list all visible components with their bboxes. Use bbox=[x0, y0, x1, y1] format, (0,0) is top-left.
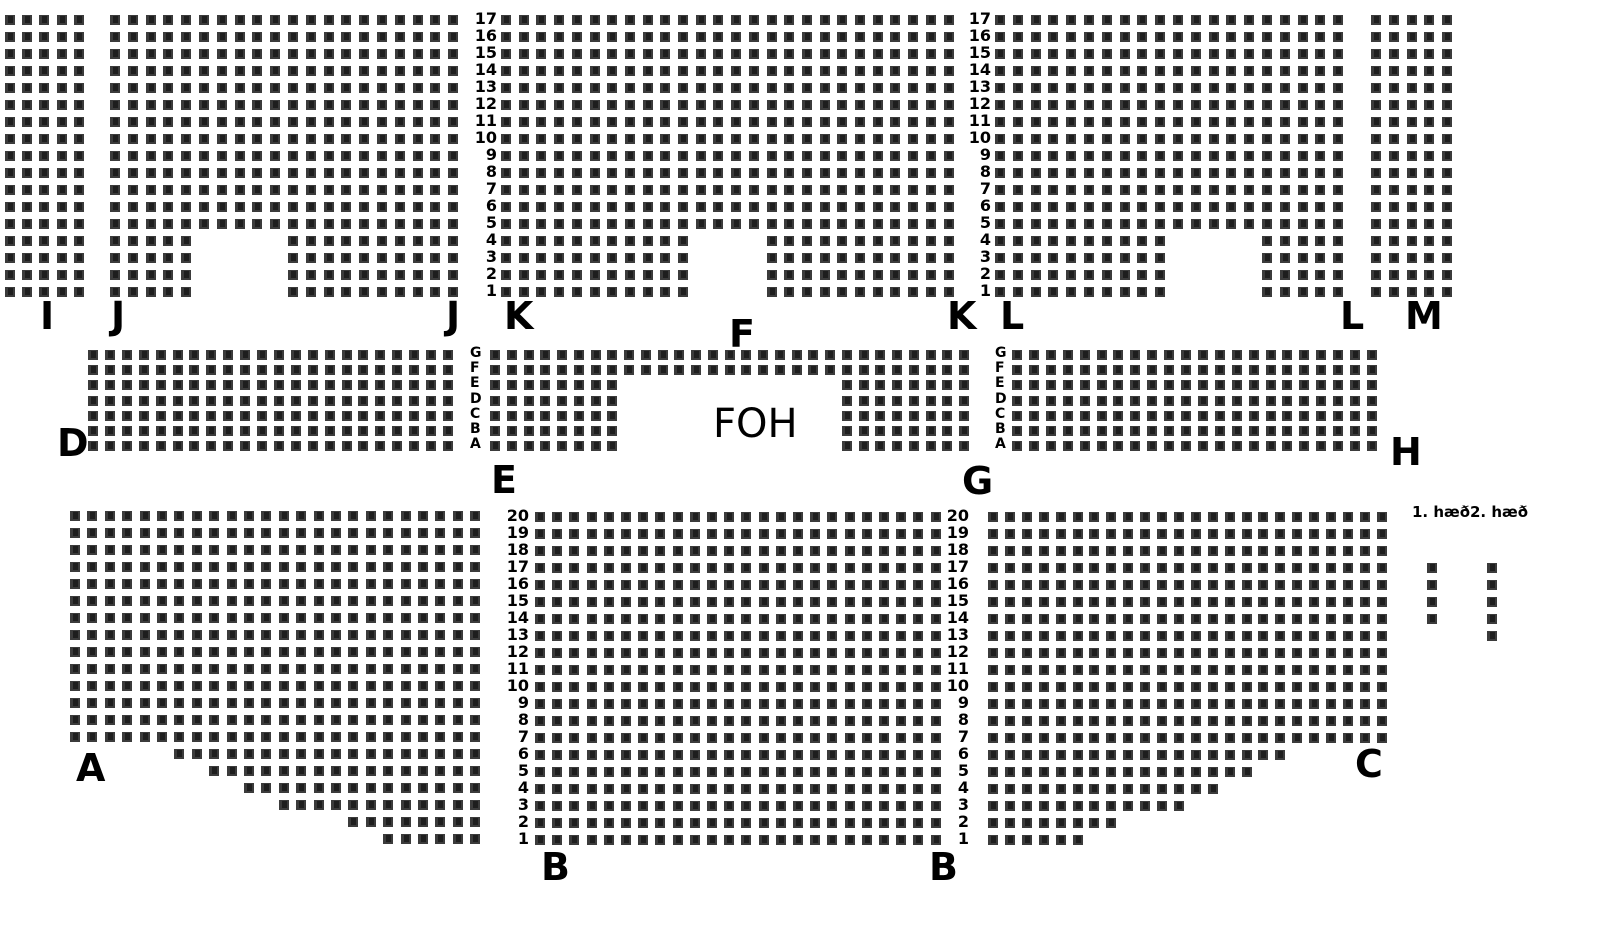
seat[interactable] bbox=[401, 732, 411, 742]
seat[interactable] bbox=[1173, 83, 1183, 93]
seat[interactable] bbox=[1292, 665, 1302, 675]
seat[interactable] bbox=[862, 835, 872, 845]
seat[interactable] bbox=[413, 185, 423, 195]
seat[interactable] bbox=[995, 151, 1005, 161]
seat[interactable] bbox=[1056, 818, 1066, 828]
seat[interactable] bbox=[418, 732, 428, 742]
seat[interactable] bbox=[892, 365, 902, 375]
seat[interactable] bbox=[625, 185, 635, 195]
seat[interactable] bbox=[590, 185, 600, 195]
seat[interactable] bbox=[1120, 219, 1130, 229]
seat[interactable] bbox=[1066, 49, 1076, 59]
seat[interactable] bbox=[1005, 614, 1015, 624]
seat[interactable] bbox=[845, 801, 855, 811]
seat[interactable] bbox=[1244, 151, 1254, 161]
seat[interactable] bbox=[896, 716, 906, 726]
seat[interactable] bbox=[139, 396, 149, 406]
seat[interactable] bbox=[223, 441, 233, 451]
seat[interactable] bbox=[206, 426, 216, 436]
seat[interactable] bbox=[673, 563, 683, 573]
seat[interactable] bbox=[105, 613, 115, 623]
seat[interactable] bbox=[554, 202, 564, 212]
seat[interactable] bbox=[87, 630, 97, 640]
seat[interactable] bbox=[1244, 100, 1254, 110]
seat[interactable] bbox=[1298, 100, 1308, 110]
seat[interactable] bbox=[655, 733, 665, 743]
seat[interactable] bbox=[383, 681, 393, 691]
seat[interactable] bbox=[892, 411, 902, 421]
seat[interactable] bbox=[418, 800, 428, 810]
seat[interactable] bbox=[1097, 411, 1107, 421]
seat[interactable] bbox=[128, 270, 138, 280]
seat[interactable] bbox=[678, 83, 688, 93]
seat[interactable] bbox=[5, 236, 15, 246]
seat[interactable] bbox=[820, 253, 830, 263]
seat[interactable] bbox=[1123, 648, 1133, 658]
seat[interactable] bbox=[1343, 529, 1353, 539]
seat[interactable] bbox=[74, 185, 84, 195]
seat[interactable] bbox=[587, 563, 597, 573]
seat[interactable] bbox=[39, 219, 49, 229]
seat[interactable] bbox=[908, 117, 918, 127]
seat[interactable] bbox=[217, 168, 227, 178]
seat[interactable] bbox=[470, 698, 480, 708]
seat[interactable] bbox=[157, 630, 167, 640]
seat[interactable] bbox=[926, 168, 936, 178]
seat[interactable] bbox=[470, 528, 480, 538]
seat[interactable] bbox=[1080, 411, 1090, 421]
seat[interactable] bbox=[157, 681, 167, 691]
seat[interactable] bbox=[57, 117, 67, 127]
seat[interactable] bbox=[110, 134, 120, 144]
seat[interactable] bbox=[1424, 83, 1434, 93]
seat[interactable] bbox=[324, 185, 334, 195]
seat[interactable] bbox=[995, 168, 1005, 178]
seat[interactable] bbox=[587, 665, 597, 675]
seat[interactable] bbox=[110, 168, 120, 178]
seat[interactable] bbox=[837, 32, 847, 42]
seat[interactable] bbox=[1013, 253, 1023, 263]
seat[interactable] bbox=[707, 580, 717, 590]
seat[interactable] bbox=[802, 66, 812, 76]
seat[interactable] bbox=[173, 350, 183, 360]
seat[interactable] bbox=[139, 411, 149, 421]
seat[interactable] bbox=[1120, 32, 1130, 42]
seat[interactable] bbox=[827, 682, 837, 692]
seat[interactable] bbox=[1292, 699, 1302, 709]
seat[interactable] bbox=[873, 151, 883, 161]
seat[interactable] bbox=[793, 631, 803, 641]
seat[interactable] bbox=[855, 49, 865, 59]
seat[interactable] bbox=[1063, 441, 1073, 451]
seat[interactable] bbox=[1106, 580, 1116, 590]
seat[interactable] bbox=[845, 750, 855, 760]
seat[interactable] bbox=[270, 185, 280, 195]
seat[interactable] bbox=[395, 49, 405, 59]
seat[interactable] bbox=[453, 749, 463, 759]
seat[interactable] bbox=[1326, 563, 1336, 573]
seat[interactable] bbox=[767, 117, 777, 127]
seat[interactable] bbox=[673, 631, 683, 641]
seat[interactable] bbox=[331, 698, 341, 708]
seat[interactable] bbox=[1048, 15, 1058, 25]
seat[interactable] bbox=[587, 699, 597, 709]
seat[interactable] bbox=[223, 411, 233, 421]
seat[interactable] bbox=[1280, 253, 1290, 263]
seat[interactable] bbox=[501, 15, 511, 25]
seat[interactable] bbox=[1137, 202, 1147, 212]
seat[interactable] bbox=[87, 562, 97, 572]
seat[interactable] bbox=[87, 681, 97, 691]
seat[interactable] bbox=[157, 664, 167, 674]
seat[interactable] bbox=[913, 750, 923, 760]
seat[interactable] bbox=[1022, 563, 1032, 573]
seat[interactable] bbox=[535, 665, 545, 675]
seat[interactable] bbox=[146, 117, 156, 127]
seat[interactable] bbox=[435, 800, 445, 810]
seat[interactable] bbox=[1031, 32, 1041, 42]
seat[interactable] bbox=[359, 202, 369, 212]
seat[interactable] bbox=[776, 784, 786, 794]
seat[interactable] bbox=[288, 117, 298, 127]
seat[interactable] bbox=[625, 151, 635, 161]
seat[interactable] bbox=[845, 835, 855, 845]
seat[interactable] bbox=[1048, 270, 1058, 280]
seat[interactable] bbox=[74, 49, 84, 59]
seat[interactable] bbox=[128, 15, 138, 25]
seat[interactable] bbox=[660, 32, 670, 42]
seat[interactable] bbox=[1084, 32, 1094, 42]
seat[interactable] bbox=[572, 185, 582, 195]
seat[interactable] bbox=[926, 426, 936, 436]
seat[interactable] bbox=[288, 15, 298, 25]
seat[interactable] bbox=[257, 350, 267, 360]
seat[interactable] bbox=[535, 648, 545, 658]
seat[interactable] bbox=[418, 681, 428, 691]
seat[interactable] bbox=[288, 270, 298, 280]
seat[interactable] bbox=[890, 202, 900, 212]
seat[interactable] bbox=[784, 32, 794, 42]
seat[interactable] bbox=[501, 202, 511, 212]
seat[interactable] bbox=[1123, 733, 1133, 743]
seat[interactable] bbox=[331, 511, 341, 521]
seat[interactable] bbox=[1120, 202, 1130, 212]
seat[interactable] bbox=[1174, 597, 1184, 607]
seat[interactable] bbox=[435, 613, 445, 623]
seat[interactable] bbox=[731, 151, 741, 161]
seat[interactable] bbox=[1031, 66, 1041, 76]
seat[interactable] bbox=[348, 579, 358, 589]
seat[interactable] bbox=[1056, 784, 1066, 794]
seat[interactable] bbox=[1173, 15, 1183, 25]
seat[interactable] bbox=[590, 134, 600, 144]
seat[interactable] bbox=[1089, 682, 1099, 692]
seat[interactable] bbox=[1140, 665, 1150, 675]
seat[interactable] bbox=[70, 715, 80, 725]
seat[interactable] bbox=[731, 15, 741, 25]
seat[interactable] bbox=[88, 396, 98, 406]
seat[interactable] bbox=[1005, 699, 1015, 709]
seat[interactable] bbox=[862, 801, 872, 811]
seat[interactable] bbox=[696, 117, 706, 127]
seat[interactable] bbox=[776, 580, 786, 590]
seat[interactable] bbox=[1089, 801, 1099, 811]
seat[interactable] bbox=[1120, 15, 1130, 25]
seat[interactable] bbox=[1298, 185, 1308, 195]
seat[interactable] bbox=[1309, 597, 1319, 607]
seat[interactable] bbox=[1102, 100, 1112, 110]
seat[interactable] bbox=[314, 715, 324, 725]
seat[interactable] bbox=[1442, 32, 1452, 42]
seat[interactable] bbox=[1066, 236, 1076, 246]
seat[interactable] bbox=[199, 83, 209, 93]
seat[interactable] bbox=[1140, 546, 1150, 556]
seat[interactable] bbox=[1181, 396, 1191, 406]
seat[interactable] bbox=[261, 511, 271, 521]
seat[interactable] bbox=[1275, 699, 1285, 709]
seat[interactable] bbox=[240, 396, 250, 406]
seat[interactable] bbox=[324, 32, 334, 42]
seat[interactable] bbox=[1487, 563, 1497, 573]
seat[interactable] bbox=[1371, 15, 1381, 25]
seat[interactable] bbox=[1063, 426, 1073, 436]
seat[interactable] bbox=[604, 835, 614, 845]
seat[interactable] bbox=[767, 151, 777, 161]
seat[interactable] bbox=[1102, 270, 1112, 280]
seat[interactable] bbox=[1371, 32, 1381, 42]
seat[interactable] bbox=[279, 715, 289, 725]
seat[interactable] bbox=[1005, 784, 1015, 794]
seat[interactable] bbox=[767, 100, 777, 110]
seat[interactable] bbox=[288, 32, 298, 42]
seat[interactable] bbox=[1326, 512, 1336, 522]
seat[interactable] bbox=[366, 511, 376, 521]
seat[interactable] bbox=[1371, 287, 1381, 297]
seat[interactable] bbox=[1424, 32, 1434, 42]
seat[interactable] bbox=[792, 365, 802, 375]
seat[interactable] bbox=[1089, 563, 1099, 573]
seat[interactable] bbox=[1191, 597, 1201, 607]
seat[interactable] bbox=[879, 665, 889, 675]
seat[interactable] bbox=[1056, 631, 1066, 641]
seat[interactable] bbox=[1427, 563, 1437, 573]
seat[interactable] bbox=[1371, 134, 1381, 144]
seat[interactable] bbox=[274, 441, 284, 451]
seat[interactable] bbox=[1084, 236, 1094, 246]
seat[interactable] bbox=[1292, 716, 1302, 726]
seat[interactable] bbox=[192, 732, 202, 742]
seat[interactable] bbox=[1209, 83, 1219, 93]
seat[interactable] bbox=[430, 100, 440, 110]
seat[interactable] bbox=[261, 545, 271, 555]
seat[interactable] bbox=[1066, 134, 1076, 144]
seat[interactable] bbox=[1005, 546, 1015, 556]
seat[interactable] bbox=[1191, 699, 1201, 709]
seat[interactable] bbox=[890, 49, 900, 59]
seat[interactable] bbox=[501, 134, 511, 144]
seat[interactable] bbox=[1208, 767, 1218, 777]
seat[interactable] bbox=[749, 100, 759, 110]
seat[interactable] bbox=[1155, 49, 1165, 59]
seat[interactable] bbox=[128, 83, 138, 93]
seat[interactable] bbox=[1089, 784, 1099, 794]
seat[interactable] bbox=[767, 168, 777, 178]
seat[interactable] bbox=[39, 270, 49, 280]
seat[interactable] bbox=[105, 579, 115, 589]
seat[interactable] bbox=[227, 647, 237, 657]
seat[interactable] bbox=[227, 511, 237, 521]
seat[interactable] bbox=[896, 801, 906, 811]
seat[interactable] bbox=[1140, 614, 1150, 624]
seat[interactable] bbox=[607, 202, 617, 212]
seat[interactable] bbox=[574, 380, 584, 390]
seat[interactable] bbox=[227, 596, 237, 606]
seat[interactable] bbox=[392, 396, 402, 406]
seat[interactable] bbox=[1089, 648, 1099, 658]
seat[interactable] bbox=[707, 733, 717, 743]
seat[interactable] bbox=[1407, 15, 1417, 25]
seat[interactable] bbox=[690, 614, 700, 624]
seat[interactable] bbox=[1326, 699, 1336, 709]
seat[interactable] bbox=[22, 134, 32, 144]
seat[interactable] bbox=[1298, 236, 1308, 246]
seat[interactable] bbox=[1326, 733, 1336, 743]
seat[interactable] bbox=[1280, 185, 1290, 195]
seat[interactable] bbox=[375, 380, 385, 390]
seat[interactable] bbox=[793, 818, 803, 828]
seat[interactable] bbox=[22, 66, 32, 76]
seat[interactable] bbox=[696, 32, 706, 42]
seat[interactable] bbox=[1181, 426, 1191, 436]
seat[interactable] bbox=[1140, 580, 1150, 590]
seat[interactable] bbox=[988, 699, 998, 709]
seat[interactable] bbox=[348, 732, 358, 742]
seat[interactable] bbox=[1244, 15, 1254, 25]
seat[interactable] bbox=[57, 185, 67, 195]
seat[interactable] bbox=[1157, 648, 1167, 658]
seat[interactable] bbox=[995, 253, 1005, 263]
seat[interactable] bbox=[110, 270, 120, 280]
seat[interactable] bbox=[690, 784, 700, 794]
seat[interactable] bbox=[39, 202, 49, 212]
seat[interactable] bbox=[435, 834, 445, 844]
seat[interactable] bbox=[128, 66, 138, 76]
seat[interactable] bbox=[820, 151, 830, 161]
seat[interactable] bbox=[604, 563, 614, 573]
seat[interactable] bbox=[1333, 426, 1343, 436]
seat[interactable] bbox=[1191, 563, 1201, 573]
seat[interactable] bbox=[181, 287, 191, 297]
seat[interactable] bbox=[1102, 151, 1112, 161]
seat[interactable] bbox=[959, 380, 969, 390]
seat[interactable] bbox=[1056, 512, 1066, 522]
seat[interactable] bbox=[189, 396, 199, 406]
seat[interactable] bbox=[1066, 100, 1076, 110]
seat[interactable] bbox=[1298, 117, 1308, 127]
seat[interactable] bbox=[140, 681, 150, 691]
seat[interactable] bbox=[655, 597, 665, 607]
seat[interactable] bbox=[621, 784, 631, 794]
seat[interactable] bbox=[110, 236, 120, 246]
seat[interactable] bbox=[1226, 15, 1236, 25]
seat[interactable] bbox=[348, 528, 358, 538]
seat[interactable] bbox=[426, 396, 436, 406]
seat[interactable] bbox=[1022, 546, 1032, 556]
seat[interactable] bbox=[696, 168, 706, 178]
seat[interactable] bbox=[1102, 32, 1112, 42]
seat[interactable] bbox=[879, 563, 889, 573]
seat[interactable] bbox=[776, 597, 786, 607]
seat[interactable] bbox=[696, 134, 706, 144]
seat[interactable] bbox=[621, 750, 631, 760]
seat[interactable] bbox=[1389, 236, 1399, 246]
seat[interactable] bbox=[163, 270, 173, 280]
seat[interactable] bbox=[192, 664, 202, 674]
seat[interactable] bbox=[128, 134, 138, 144]
seat[interactable] bbox=[1282, 380, 1292, 390]
seat[interactable] bbox=[741, 665, 751, 675]
seat[interactable] bbox=[1164, 411, 1174, 421]
seat[interactable] bbox=[1039, 546, 1049, 556]
seat[interactable] bbox=[643, 83, 653, 93]
seat[interactable] bbox=[1120, 168, 1130, 178]
seat[interactable] bbox=[810, 563, 820, 573]
seat[interactable] bbox=[470, 562, 480, 572]
seat[interactable] bbox=[1191, 614, 1201, 624]
seat[interactable] bbox=[57, 202, 67, 212]
seat[interactable] bbox=[1343, 614, 1353, 624]
seat[interactable] bbox=[1389, 270, 1399, 280]
seat[interactable] bbox=[909, 441, 919, 451]
seat[interactable] bbox=[820, 32, 830, 42]
seat[interactable] bbox=[926, 270, 936, 280]
seat[interactable] bbox=[572, 83, 582, 93]
seat[interactable] bbox=[1147, 396, 1157, 406]
seat[interactable] bbox=[140, 647, 150, 657]
seat[interactable] bbox=[1155, 270, 1165, 280]
seat[interactable] bbox=[1208, 614, 1218, 624]
seat[interactable] bbox=[1005, 750, 1015, 760]
seat[interactable] bbox=[995, 219, 1005, 229]
seat[interactable] bbox=[288, 236, 298, 246]
seat[interactable] bbox=[1123, 597, 1133, 607]
seat[interactable] bbox=[296, 528, 306, 538]
seat[interactable] bbox=[1084, 100, 1094, 110]
seat[interactable] bbox=[988, 682, 998, 692]
seat[interactable] bbox=[590, 117, 600, 127]
seat[interactable] bbox=[1326, 546, 1336, 556]
seat[interactable] bbox=[535, 563, 545, 573]
seat[interactable] bbox=[942, 441, 952, 451]
seat[interactable] bbox=[741, 835, 751, 845]
seat[interactable] bbox=[1031, 253, 1041, 263]
seat[interactable] bbox=[926, 202, 936, 212]
seat[interactable] bbox=[74, 83, 84, 93]
seat[interactable] bbox=[1039, 818, 1049, 828]
seat[interactable] bbox=[1147, 426, 1157, 436]
seat[interactable] bbox=[519, 49, 529, 59]
seat[interactable] bbox=[1280, 168, 1290, 178]
seat[interactable] bbox=[88, 441, 98, 451]
seat[interactable] bbox=[314, 766, 324, 776]
seat[interactable] bbox=[1389, 219, 1399, 229]
seat[interactable] bbox=[1157, 546, 1167, 556]
seat[interactable] bbox=[1120, 117, 1130, 127]
seat[interactable] bbox=[1063, 380, 1073, 390]
seat[interactable] bbox=[105, 528, 115, 538]
seat[interactable] bbox=[810, 529, 820, 539]
seat[interactable] bbox=[87, 613, 97, 623]
